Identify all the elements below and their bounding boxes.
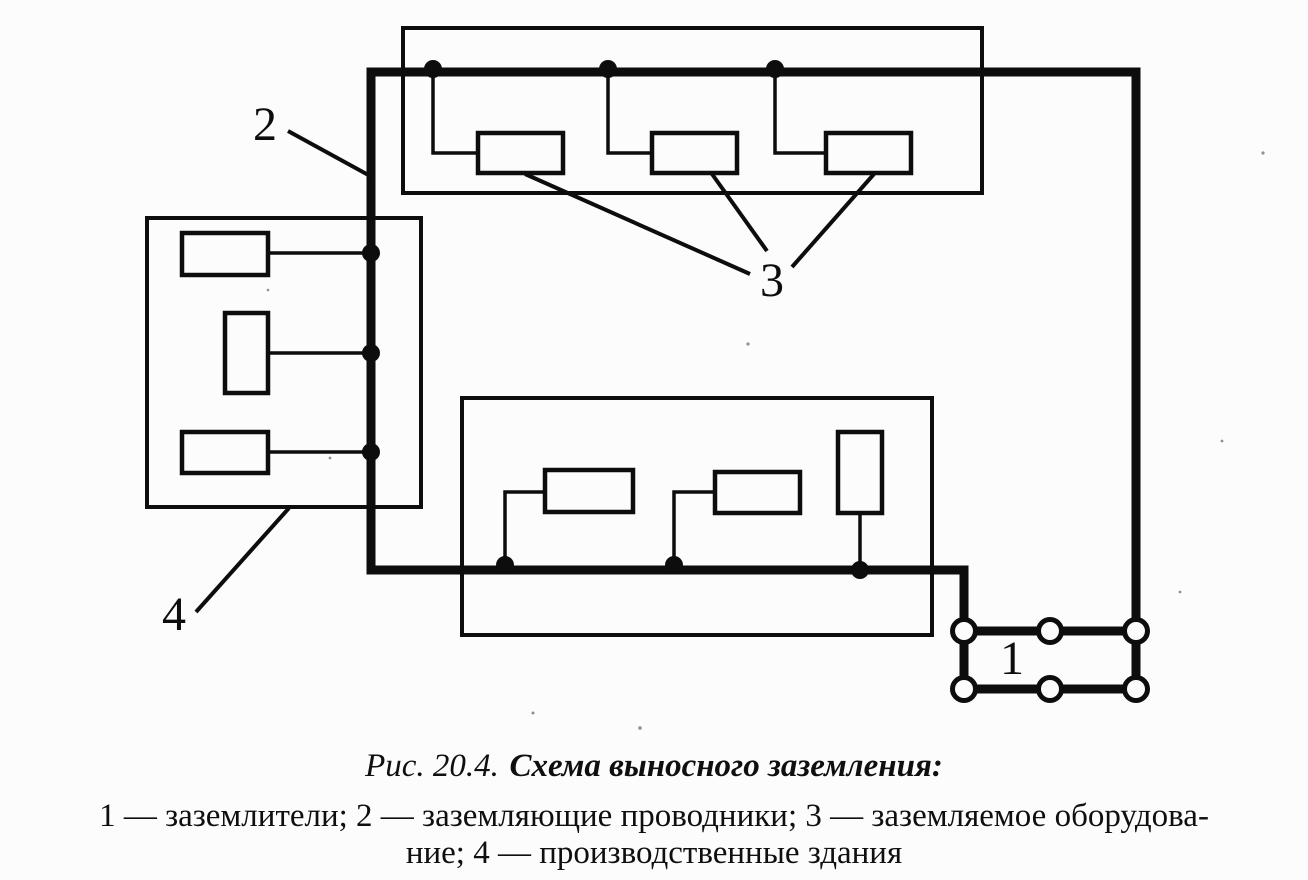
callout-leaders bbox=[196, 131, 874, 612]
leader-callout-4 bbox=[196, 508, 289, 612]
branch-top-3 bbox=[775, 72, 826, 153]
electrode-node bbox=[953, 620, 976, 643]
figure-legend-line-2: ние; 4 — производственные здания bbox=[0, 834, 1308, 872]
equipment-box bbox=[182, 432, 268, 473]
callout-1-label: 1 bbox=[1000, 632, 1024, 685]
figure-title: Схема выносного заземления: bbox=[509, 748, 942, 784]
equipment-box bbox=[838, 432, 882, 513]
leader-callout-3c bbox=[792, 174, 874, 267]
leader-callout-3a bbox=[525, 174, 750, 274]
equipment-boxes bbox=[182, 133, 911, 513]
equipment-box bbox=[826, 133, 911, 173]
equipment-box bbox=[715, 472, 800, 513]
junction-dot bbox=[362, 443, 380, 461]
equipment-box bbox=[478, 133, 563, 173]
electrode-node bbox=[1125, 678, 1148, 701]
equipment-box bbox=[545, 470, 633, 512]
branch-bottom-2 bbox=[674, 492, 715, 570]
callout-2-label: 2 bbox=[253, 98, 277, 151]
equipment-box bbox=[225, 313, 268, 393]
scan-speckles bbox=[267, 151, 1265, 729]
callout-labels: 2 3 4 1 bbox=[162, 98, 1024, 685]
figure-page: 2 3 4 1 Рис. 20.4.Схема выносного заземл… bbox=[0, 0, 1308, 880]
electrode-node bbox=[953, 678, 976, 701]
callout-4-label: 4 bbox=[162, 588, 186, 641]
equipment-box bbox=[652, 133, 737, 173]
junction-dot bbox=[665, 556, 683, 574]
leader-callout-3b bbox=[712, 174, 767, 251]
junction-dot bbox=[424, 60, 442, 78]
figure-caption-title-line: Рис. 20.4.Схема выносного заземления: bbox=[0, 747, 1308, 785]
junction-dot bbox=[766, 60, 784, 78]
junction-dot bbox=[496, 556, 514, 574]
equipment-box bbox=[182, 233, 268, 275]
junction-dot bbox=[362, 344, 380, 362]
junction-dot bbox=[362, 244, 380, 262]
callout-3-label: 3 bbox=[760, 254, 784, 307]
electrode-node bbox=[1039, 620, 1062, 643]
electrode-node bbox=[1039, 678, 1062, 701]
electrode-node bbox=[1125, 620, 1148, 643]
branch-top-2 bbox=[608, 72, 652, 153]
leader-callout-2 bbox=[288, 131, 372, 177]
figure-legend-line-1: 1 — заземлители; 2 — заземляющие проводн… bbox=[0, 797, 1308, 835]
branch-top-1 bbox=[433, 72, 478, 153]
junction-dot bbox=[599, 60, 617, 78]
junction-dot bbox=[851, 561, 869, 579]
figure-number: Рис. 20.4. bbox=[365, 748, 499, 784]
